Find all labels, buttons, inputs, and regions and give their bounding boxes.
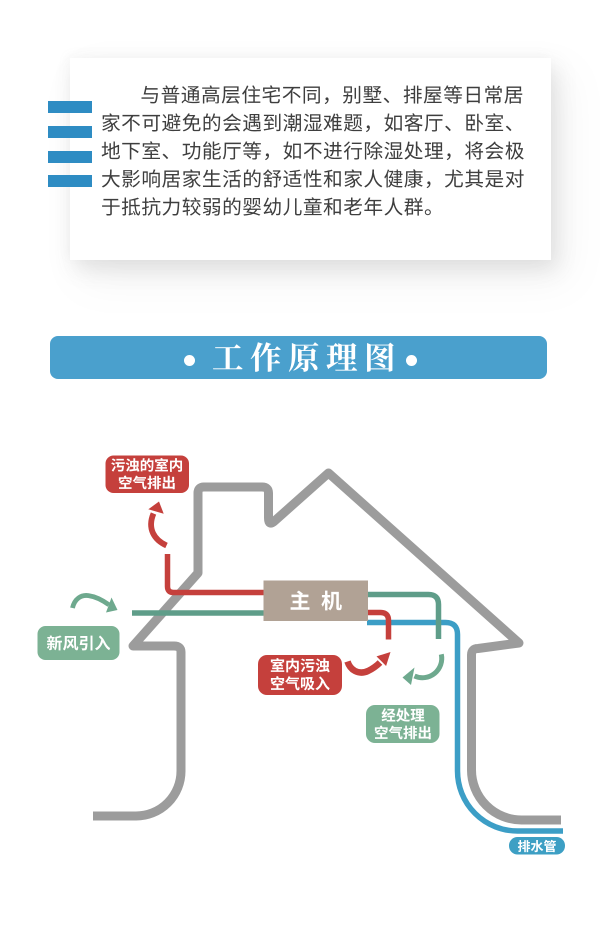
svg-text:空气吸入: 空气吸入 [270, 673, 330, 694]
svg-text:排水管: 排水管 [517, 836, 556, 855]
svg-text:主 机: 主 机 [290, 586, 343, 616]
svg-text:空气排出: 空气排出 [374, 722, 432, 743]
svg-text:新风引入: 新风引入 [46, 630, 110, 654]
svg-text:空气排出: 空气排出 [118, 472, 176, 493]
